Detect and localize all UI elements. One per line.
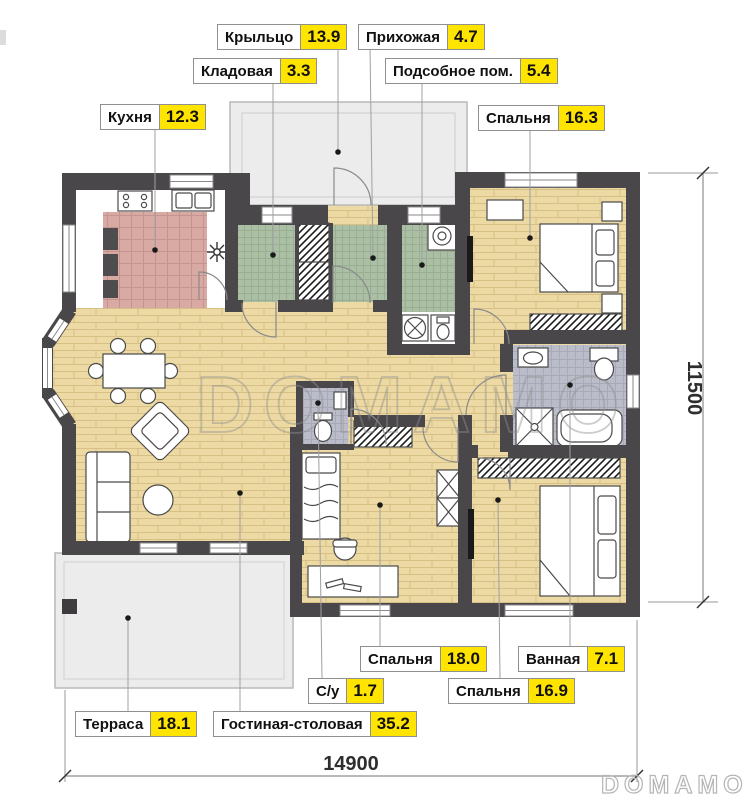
sofa [86,452,130,542]
entry-closet [297,223,329,300]
hallway-room [333,225,387,302]
floor-plan-page: DOMAMO 14900 11500 [0,0,747,800]
room-area: 16.9 [528,679,574,703]
window [63,225,75,292]
window [340,605,390,616]
window [505,173,577,187]
room-area: 12.3 [159,105,205,129]
room-label-bedroom-169: Спальня16.9 [448,678,575,704]
room-area: 1.7 [346,679,383,703]
window [140,543,177,553]
room-name: Кухня [101,105,159,129]
room-label-bedroom-180: Спальня18.0 [360,646,487,672]
room-area: 35.2 [370,712,416,736]
room-name: Спальня [449,679,528,703]
room-area: 3.3 [280,59,317,83]
sliding-door-leaf [468,509,474,559]
room-label-bedroom-163: Спальня16.3 [478,105,605,131]
room-area: 16.3 [558,106,604,130]
dimension-right: 11500 [648,167,718,608]
porch [230,102,467,205]
window [170,175,213,188]
terrace [55,553,293,688]
room-area: 4.7 [447,25,484,49]
window [408,207,440,223]
stove-icon [118,191,152,211]
kitchen-cabinets [103,228,118,298]
room-name: Терраса [76,712,150,736]
room-name: Спальня [479,106,558,130]
room-name: Ванная [519,647,587,671]
room-label-kitchen: Кухня12.3 [100,104,206,130]
page-artifact [0,30,6,45]
room-area: 13.9 [300,25,346,49]
room-label-porch: Крыльцо13.9 [217,24,347,50]
room-label-terrace: Терраса18.1 [75,711,197,737]
storage-room [238,225,295,302]
room-area: 18.1 [150,712,196,736]
kitchen-sink-icon [172,190,214,211]
sliding-door-leaf [467,236,473,282]
coffee-table [143,485,173,515]
brand-logo: DOMAMO [601,771,747,799]
room-label-wc: С/у1.7 [308,678,384,704]
room-name: Крыльцо [218,25,300,49]
room-area: 18.0 [440,647,486,671]
dimension-height-text: 11500 [683,361,705,416]
kitchen-counter [88,190,238,212]
window [505,605,573,616]
room-area: 5.4 [520,59,557,83]
window [210,543,247,553]
room-name: Гостиная-столовая [214,712,370,736]
wardrobe-bedroom-169 [478,458,620,478]
utility-sink-icon [402,315,428,341]
room-label-utility: Подсобное пом.5.4 [385,58,558,84]
room-label-storage: Кладовая3.3 [193,58,317,84]
room-name: С/у [309,679,346,703]
bed-single [302,453,340,539]
room-label-living-dining: Гостиная-столовая35.2 [213,711,417,737]
room-name: Кладовая [194,59,280,83]
room-label-bathroom: Ванная7.1 [518,646,625,672]
window [262,207,292,223]
room-name: Спальня [361,647,440,671]
room-label-hallway: Прихожая4.7 [358,24,485,50]
terrace-pillar [62,599,77,614]
utility-wc-icon [431,315,455,341]
room-area: 7.1 [587,647,624,671]
washing-machine-icon [428,222,456,250]
wardrobe-bedroom-180 [437,470,460,526]
bed-double-bottom [540,486,620,596]
room-name: Прихожая [359,25,447,49]
dimension-width-text: 14900 [323,753,379,775]
room-name: Подсобное пом. [386,59,520,83]
watermark-text: DOMAMO [196,360,629,449]
boiler-icon [207,242,227,262]
